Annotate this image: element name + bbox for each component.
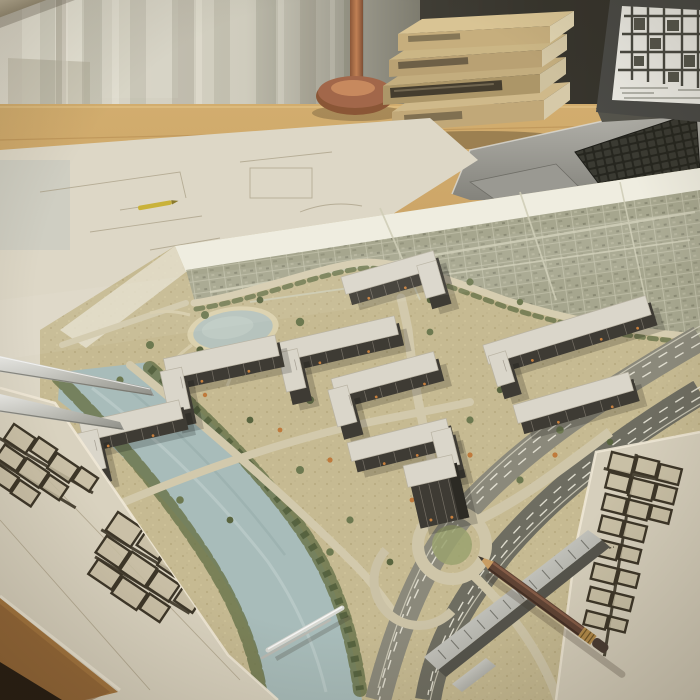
scene-canvas xyxy=(0,0,700,700)
desk-scene xyxy=(0,0,700,700)
vignette xyxy=(0,0,700,700)
